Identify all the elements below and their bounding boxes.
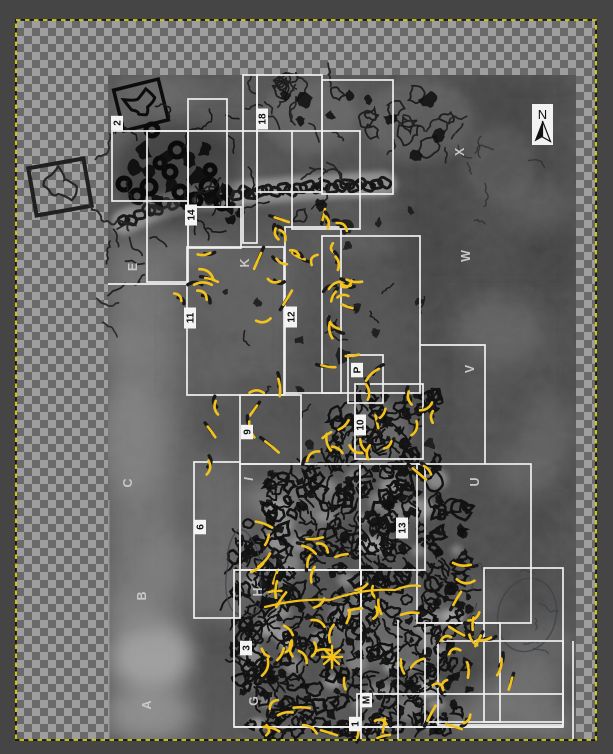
svg-text:11: 11 — [186, 312, 197, 323]
svg-text:K: K — [238, 258, 252, 267]
svg-text:X: X — [453, 147, 467, 156]
svg-text:13: 13 — [398, 522, 409, 534]
svg-text:2: 2 — [113, 120, 124, 126]
svg-text:W: W — [459, 250, 473, 262]
svg-text:A: A — [140, 700, 154, 709]
svg-text:U: U — [468, 477, 482, 486]
svg-text:E: E — [126, 263, 140, 271]
svg-text:B: B — [135, 591, 149, 600]
svg-text:V: V — [463, 364, 477, 373]
svg-text:18: 18 — [258, 113, 269, 125]
svg-text:C: C — [121, 478, 135, 487]
svg-text:P: P — [353, 366, 364, 373]
svg-text:N: N — [538, 107, 547, 122]
svg-text:6: 6 — [196, 524, 207, 530]
svg-text:1: 1 — [351, 721, 362, 727]
svg-text:9: 9 — [243, 429, 254, 435]
svg-text:M: M — [362, 696, 373, 704]
svg-text:I: I — [242, 477, 256, 481]
svg-text:12: 12 — [287, 311, 298, 323]
svg-text:14: 14 — [187, 209, 198, 221]
svg-text:3: 3 — [242, 645, 253, 651]
svg-text:H: H — [251, 587, 265, 596]
svg-text:10: 10 — [356, 419, 367, 431]
svg-text:G: G — [247, 696, 261, 706]
